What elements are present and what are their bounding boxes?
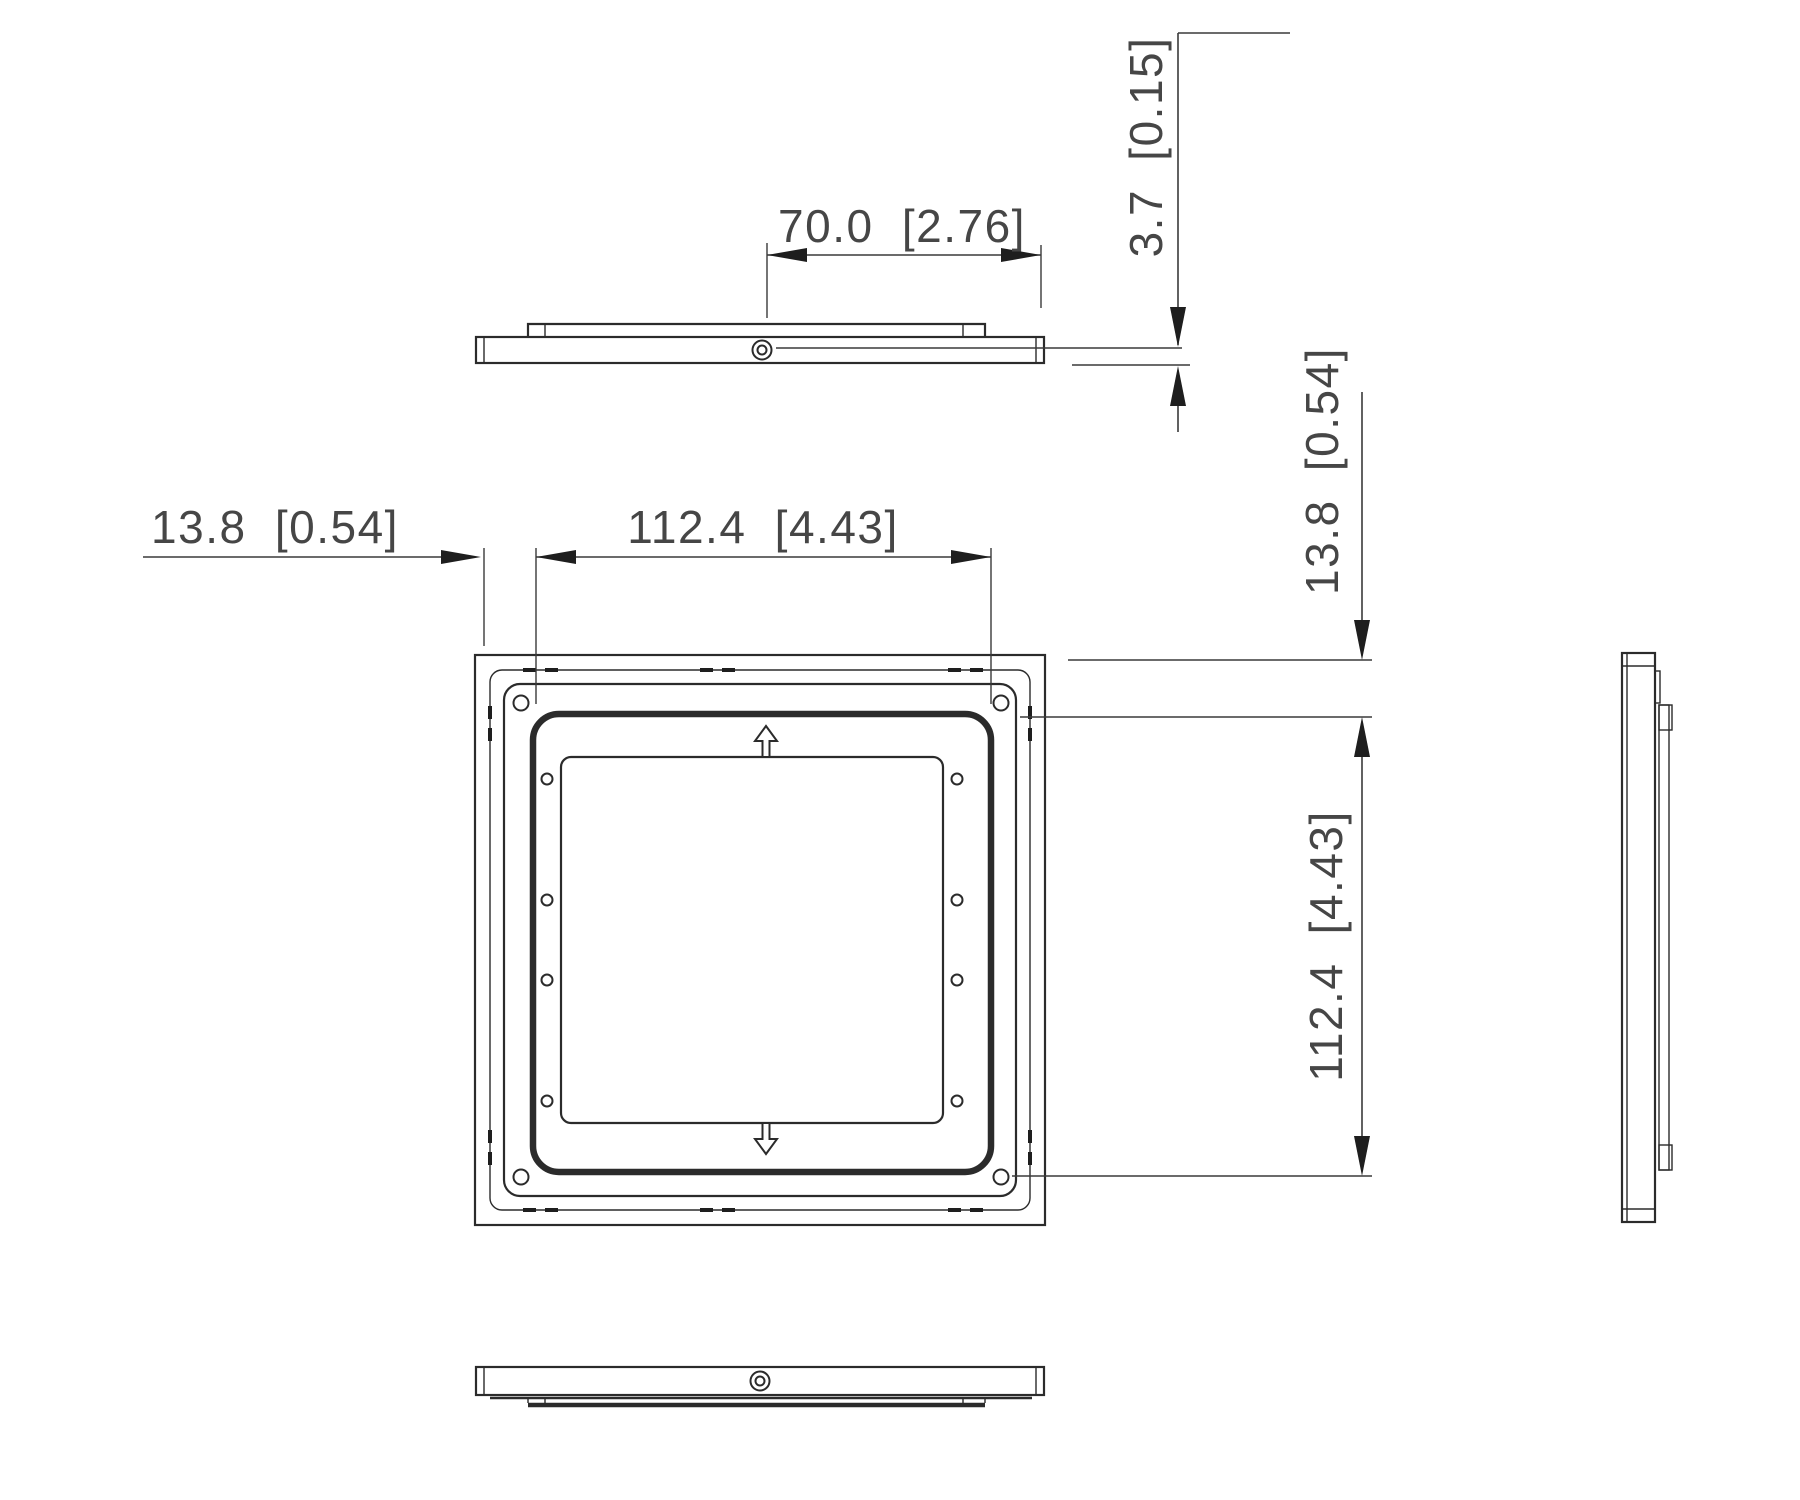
arrowhead-right-icon [951,550,991,564]
side-holes-right [952,774,963,1107]
side-gasket-strip [1659,705,1669,1170]
side-view [1622,653,1672,1222]
mount-hole [952,774,963,785]
dim-label-boss-width: 70.0 [2.76] [778,200,1026,252]
front-view [475,655,1045,1225]
gasket-ring [533,714,991,1172]
screw-hole-inner [758,346,767,355]
arrowhead-down-icon [1170,307,1186,347]
top-view [476,324,1182,363]
mount-hole [952,1096,963,1107]
mount-hole [542,774,553,785]
dimension-edge-offset-right: 13.8 [0.54] [1020,347,1372,717]
arrowhead-up-icon [1170,366,1186,406]
side-holes-left [542,774,553,1107]
dimension-boss-width: 70.0 [2.76] [767,200,1041,318]
corner-hole [514,696,529,711]
dimension-thickness: 3.7 [0.15] [1072,33,1290,432]
dim-label-pattern-height: 112.4 [4.43] [1300,810,1352,1082]
arrowhead-left-icon [536,550,576,564]
dimension-edge-offset-left: 13.8 [0.54] [143,501,484,646]
bottom-view [476,1367,1044,1405]
arrowhead-down-icon [1354,620,1370,660]
dim-label-edge-offset-right: 13.8 [0.54] [1296,347,1348,595]
dimension-pattern-height: 112.4 [4.43] [1012,717,1372,1176]
side-gasket-nub-bottom [1659,1145,1672,1170]
top-view-boss-notches [545,324,963,337]
arrowhead-up-icon [1354,717,1370,757]
dim-label-edge-offset-left: 13.8 [0.54] [151,501,399,553]
technical-drawing: 70.0 [2.76] 3.7 [0.15] [0,0,1800,1500]
arrowhead-right-icon [441,550,481,564]
extension-lines [536,548,991,704]
mount-hole [542,1096,553,1107]
mount-hole [952,975,963,986]
corner-hole [514,1170,529,1185]
top-view-boss [528,324,985,337]
corner-hole [994,1170,1009,1185]
dim-label-thickness: 3.7 [0.15] [1120,37,1172,258]
mount-hole [542,975,553,986]
corner-hole [994,696,1009,711]
recess-frame [504,684,1016,1196]
arrowhead-down-icon [1354,1136,1370,1176]
dim-label-pattern-width: 112.4 [4.43] [627,501,899,553]
drawing-canvas: 70.0 [2.76] 3.7 [0.15] [0,0,1800,1500]
inner-rim [490,670,1030,1210]
orientation-arrow-down-icon [755,1123,777,1154]
orientation-arrow-up-icon [755,726,777,757]
mount-hole [542,895,553,906]
mount-hole [952,895,963,906]
dimension-pattern-width: 112.4 [4.43] [536,501,991,704]
mounting-plate-opening [561,757,943,1123]
screw-hole-inner [756,1377,765,1386]
side-gasket-nub-top [1659,705,1672,730]
